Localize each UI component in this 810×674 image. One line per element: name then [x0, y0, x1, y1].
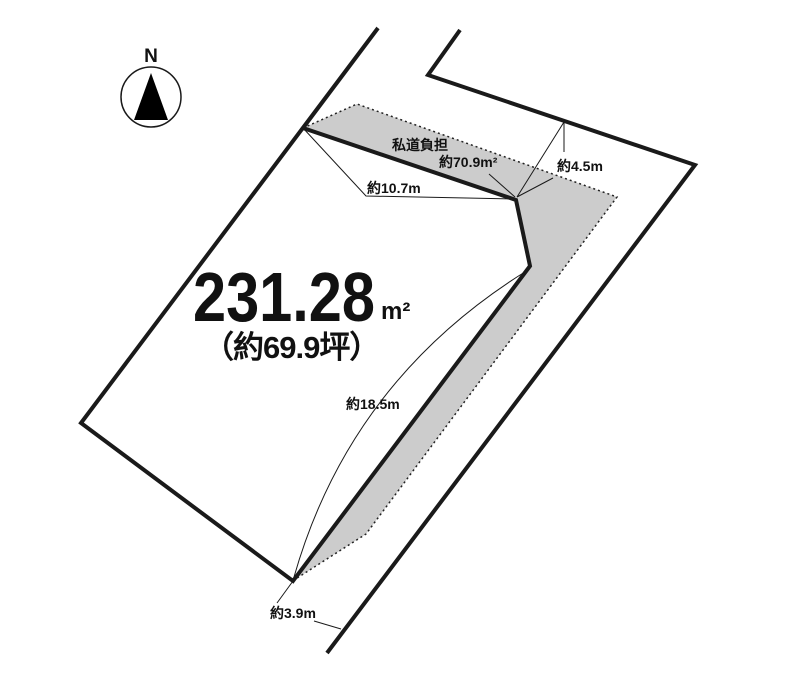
dim-label-road-width-bottom: 約3.9m — [270, 606, 316, 621]
north-compass — [121, 67, 181, 127]
parcel-area-value: 231.28 — [193, 262, 375, 332]
compass-north-label: N — [138, 46, 164, 68]
dim-label-road-width-top: 約4.5m — [557, 159, 603, 174]
private-road-area-label: 約70.9m² — [439, 155, 497, 170]
parcel-area-unit: m² — [381, 300, 410, 324]
dim-label-side-southeast: 約18.5m — [346, 397, 400, 412]
plot-survey-diagram: N 私道負担 約70.9m² 約4.5m 約10.7m 231.28 m² （約… — [0, 0, 810, 674]
parcel-area-label: 231.28 m² — [193, 262, 407, 332]
parcel-area-tsubo-label: （約69.9坪） — [203, 330, 379, 366]
dim-label-frontage-upper: 約10.7m — [367, 181, 421, 196]
diagram-geometry — [0, 0, 810, 674]
private-road-label: 私道負担 — [392, 138, 448, 153]
